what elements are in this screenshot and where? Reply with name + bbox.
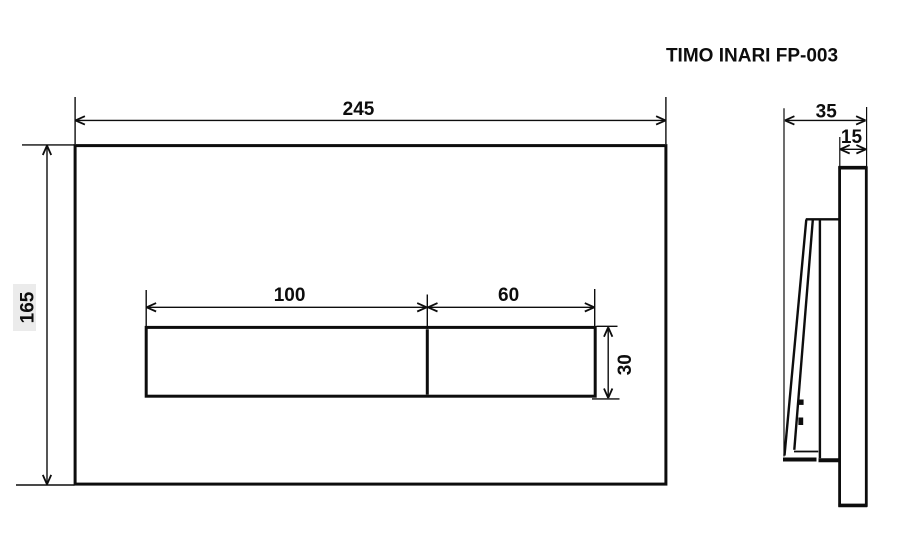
svg-text:60: 60 — [498, 285, 519, 306]
svg-text:TIMO INARI FP-003: TIMO INARI FP-003 — [666, 46, 838, 67]
svg-text:30: 30 — [615, 354, 636, 375]
svg-text:15: 15 — [841, 127, 863, 148]
svg-text:245: 245 — [343, 99, 375, 120]
svg-text:35: 35 — [816, 101, 838, 122]
svg-text:165: 165 — [18, 291, 39, 323]
svg-text:100: 100 — [274, 285, 306, 306]
